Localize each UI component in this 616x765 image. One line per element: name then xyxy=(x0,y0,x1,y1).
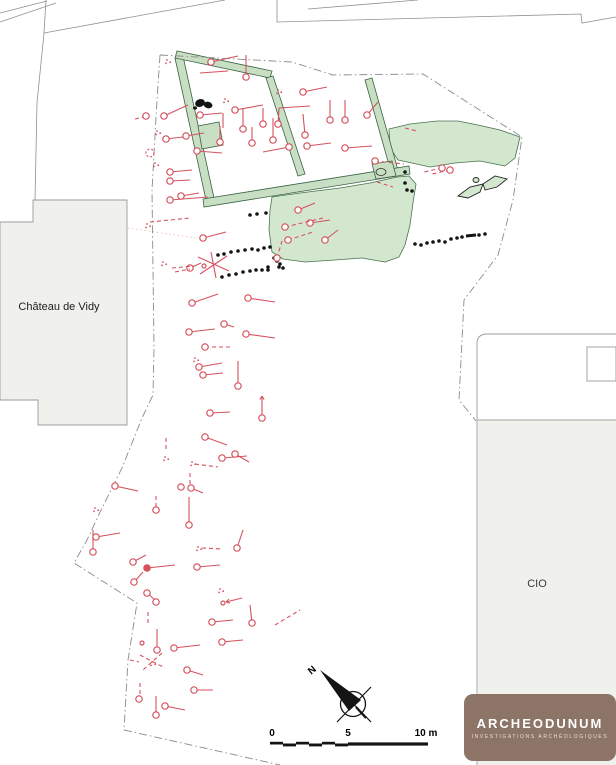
red-dot-cluster xyxy=(150,665,152,667)
red-line xyxy=(195,464,218,467)
stone-dot xyxy=(266,265,270,269)
red-dot-cluster xyxy=(94,507,96,509)
posthole-symbol xyxy=(249,620,255,626)
posthole-symbol xyxy=(90,549,96,555)
scalebar-label-0: 0 xyxy=(266,728,278,739)
posthole-symbol xyxy=(178,193,184,199)
posthole-symbol xyxy=(274,255,280,261)
posthole-symbol xyxy=(167,197,173,203)
posthole-symbol xyxy=(235,383,241,389)
scalebar xyxy=(348,742,428,745)
posthole-symbol xyxy=(342,145,348,151)
posthole-symbol xyxy=(342,117,348,123)
posthole-symbol xyxy=(364,112,370,118)
posthole-symbol xyxy=(260,121,266,127)
posthole-symbol xyxy=(439,165,445,171)
posthole-symbol xyxy=(130,559,136,565)
stone-dot xyxy=(403,170,407,174)
red-dot-cluster xyxy=(196,550,198,552)
posthole-symbol xyxy=(208,59,214,65)
posthole-symbol xyxy=(167,169,173,175)
red-dot-cluster xyxy=(154,162,156,164)
red-dot-cluster xyxy=(157,164,159,166)
posthole-symbol xyxy=(209,619,215,625)
posthole-symbol xyxy=(219,639,225,645)
stone-dot xyxy=(222,252,226,256)
posthole-symbol xyxy=(322,237,328,243)
posthole-symbol xyxy=(136,696,142,702)
scalebar-layer xyxy=(270,742,428,747)
red-dot-cluster xyxy=(277,89,279,91)
junction-feature xyxy=(376,169,386,176)
stone-dot xyxy=(460,235,464,239)
stone-dot xyxy=(250,247,254,251)
red-dot-cluster xyxy=(227,100,229,102)
stone-dot xyxy=(255,212,259,216)
black-feature-layer xyxy=(193,98,213,110)
red-dot-cluster xyxy=(200,548,202,550)
posthole-symbol xyxy=(202,264,206,268)
stone-dot xyxy=(248,213,252,217)
stone-dot xyxy=(455,236,459,240)
posthole-symbol xyxy=(232,451,238,457)
stone-dot xyxy=(227,273,231,277)
pirogue-detail xyxy=(473,178,479,183)
posthole-symbol xyxy=(183,133,189,139)
red-dot-cluster xyxy=(222,590,224,592)
posthole-symbol xyxy=(285,237,291,243)
outlines-layer xyxy=(0,0,616,200)
posthole-symbol xyxy=(186,522,192,528)
red-dot-cluster xyxy=(93,511,95,513)
posthole-symbol xyxy=(240,126,246,132)
posthole-symbol xyxy=(302,132,308,138)
stone-dot xyxy=(437,239,441,243)
posthole-symbol xyxy=(217,139,223,145)
red-dot-cluster xyxy=(145,227,147,229)
posthole-symbol xyxy=(295,207,301,213)
stone-dot xyxy=(234,272,238,276)
chateau-de-vidy-label: Château de Vidy xyxy=(3,301,115,313)
wall-north xyxy=(175,51,272,78)
posthole-symbol xyxy=(187,265,193,271)
posthole-symbol xyxy=(191,687,197,693)
red-dot-cluster xyxy=(164,456,166,458)
stone-dot xyxy=(262,246,266,250)
stone-dot xyxy=(268,245,272,249)
cio-annex xyxy=(587,347,616,381)
stone-dot xyxy=(449,237,453,241)
disturbance-feature xyxy=(193,106,197,109)
wall-east xyxy=(365,78,398,172)
red-dot-cluster xyxy=(224,98,226,100)
stone-dot xyxy=(477,233,481,237)
posthole-symbol xyxy=(234,545,240,551)
pirogue-feature xyxy=(458,184,483,198)
posthole-symbol xyxy=(270,137,276,143)
posthole-symbol xyxy=(243,74,249,80)
posthole-symbol xyxy=(282,224,288,230)
red-line xyxy=(275,610,300,625)
posthole-symbol xyxy=(178,484,184,490)
stone-dot xyxy=(254,268,258,272)
red-dot-cluster xyxy=(197,546,199,548)
red-dot-cluster xyxy=(193,361,195,363)
red-dot-cluster xyxy=(154,663,156,665)
posthole-symbol xyxy=(167,178,173,184)
stone-dot xyxy=(413,242,417,246)
posthole-symbol xyxy=(200,235,206,241)
posthole-symbol xyxy=(249,140,255,146)
red-dot-cluster xyxy=(169,61,171,63)
stone-dash xyxy=(466,235,476,236)
posthole-symbol xyxy=(300,89,306,95)
logo-subtitle: INVESTIGATIONS ARCHÉOLOGIQUES xyxy=(472,734,609,740)
stone-dot xyxy=(256,248,260,252)
red-dot-cluster xyxy=(197,359,199,361)
stone-dot xyxy=(281,266,285,270)
posthole-symbol xyxy=(200,372,206,378)
posthole-symbol xyxy=(327,117,333,123)
posthole-symbol xyxy=(146,149,154,157)
posthole-symbol xyxy=(93,534,99,540)
red-dot-cluster xyxy=(159,132,161,134)
posthole-symbol xyxy=(153,599,159,605)
red-dot-cluster xyxy=(97,509,99,511)
red-line xyxy=(202,548,222,549)
posthole-symbol xyxy=(194,148,200,154)
stone-dot xyxy=(248,269,252,273)
red-dot-cluster xyxy=(165,63,167,65)
posthole-symbol xyxy=(163,136,169,142)
stone-dot xyxy=(243,248,247,252)
red-dot-cluster xyxy=(162,261,164,263)
red-dot-cluster xyxy=(155,134,157,136)
posthole-symbol xyxy=(186,329,192,335)
red-dot-cluster xyxy=(223,102,225,104)
posthole-symbol xyxy=(221,601,225,605)
red-dot-cluster xyxy=(151,661,153,663)
posthole-symbol xyxy=(162,703,168,709)
posthole-symbol xyxy=(202,344,208,350)
red-dot-cluster xyxy=(165,263,167,265)
posthole-symbol xyxy=(202,434,208,440)
demolition-layer-east xyxy=(389,121,520,167)
posthole-symbol xyxy=(219,455,225,461)
north-arrow-layer xyxy=(320,670,371,722)
posthole-symbol xyxy=(112,483,118,489)
posthole-symbol xyxy=(304,143,310,149)
red-line xyxy=(130,660,139,662)
red-dot-cluster xyxy=(163,460,165,462)
red-dot-cluster xyxy=(218,592,220,594)
stone-dot xyxy=(241,270,245,274)
stone-dot xyxy=(425,241,429,245)
posthole-symbol xyxy=(307,220,313,226)
cio-label: CIO xyxy=(507,578,567,590)
stone-dot xyxy=(216,253,220,257)
red-dot-cluster xyxy=(166,59,168,61)
posthole-symbol xyxy=(144,565,150,571)
posthole-symbol xyxy=(221,321,227,327)
red-dot-cluster xyxy=(280,91,282,93)
stone-dot xyxy=(419,243,423,247)
stone-dot xyxy=(260,268,264,272)
stone-dot xyxy=(483,232,487,236)
red-dot-cluster xyxy=(194,463,196,465)
posthole-symbol xyxy=(243,331,249,337)
red-dot-cluster xyxy=(190,465,192,467)
logo-title: ARCHEODUNUM xyxy=(477,716,604,731)
scalebar-label-10m: 10 m xyxy=(405,728,447,739)
red-dot-cluster xyxy=(219,588,221,590)
red-dot-cluster xyxy=(194,357,196,359)
stone-dot xyxy=(229,250,233,254)
red-dot-cluster xyxy=(149,225,151,227)
posthole-symbol xyxy=(259,415,265,421)
posthole-symbol xyxy=(131,579,137,585)
posthole-symbol xyxy=(188,485,194,491)
site-plan-canvas xyxy=(0,0,616,765)
red-dot-cluster xyxy=(191,461,193,463)
posthole-symbol xyxy=(207,410,213,416)
posthole-symbol xyxy=(372,158,378,164)
posthole-symbol xyxy=(194,564,200,570)
posthole-symbol xyxy=(140,641,144,645)
stone-dot xyxy=(403,181,407,185)
red-dot-cluster xyxy=(153,166,155,168)
red-line xyxy=(279,106,310,108)
scalebar-label-5: 5 xyxy=(342,728,354,739)
stone-dot xyxy=(236,249,240,253)
posthole-symbol xyxy=(154,647,160,653)
stone-dot xyxy=(405,188,409,192)
wall-middle xyxy=(266,76,305,176)
posthole-symbol xyxy=(275,121,281,127)
posthole-symbol xyxy=(171,645,177,651)
stone-dot xyxy=(220,275,224,279)
stone-dot xyxy=(410,189,414,193)
posthole-symbol xyxy=(153,712,159,718)
posthole-symbol xyxy=(189,300,195,306)
posthole-symbol xyxy=(286,144,292,150)
stone-dot xyxy=(264,211,268,215)
stone-dot xyxy=(443,240,447,244)
archeodunum-logo: ARCHEODUNUM INVESTIGATIONS ARCHÉOLOGIQUE… xyxy=(464,694,616,761)
red-dot-cluster xyxy=(161,265,163,267)
posthole-symbol xyxy=(144,590,150,596)
stone-dot xyxy=(277,265,281,269)
buildings-layer xyxy=(0,200,616,765)
red-dot-cluster xyxy=(276,93,278,95)
dotted-leader xyxy=(128,228,196,238)
stone-dot xyxy=(431,240,435,244)
posthole-symbol xyxy=(245,295,251,301)
red-line xyxy=(135,117,143,119)
pirogue-feature xyxy=(483,176,507,190)
posthole-symbol xyxy=(143,113,149,119)
posthole-symbol xyxy=(161,113,167,119)
red-dot-cluster xyxy=(156,130,158,132)
posthole-symbol xyxy=(447,167,453,173)
site-plan: Château de Vidy CIO N 0 5 10 m ARCHEODUN… xyxy=(0,0,616,765)
red-line xyxy=(200,71,228,73)
red-line xyxy=(150,218,190,222)
posthole-symbol xyxy=(197,112,203,118)
posthole-symbol xyxy=(196,364,202,370)
posthole-symbol xyxy=(232,107,238,113)
posthole-symbol xyxy=(184,667,190,673)
red-dot-cluster xyxy=(167,458,169,460)
green-structures-layer xyxy=(175,51,520,262)
red-dot-cluster xyxy=(146,223,148,225)
posthole-symbol xyxy=(153,507,159,513)
